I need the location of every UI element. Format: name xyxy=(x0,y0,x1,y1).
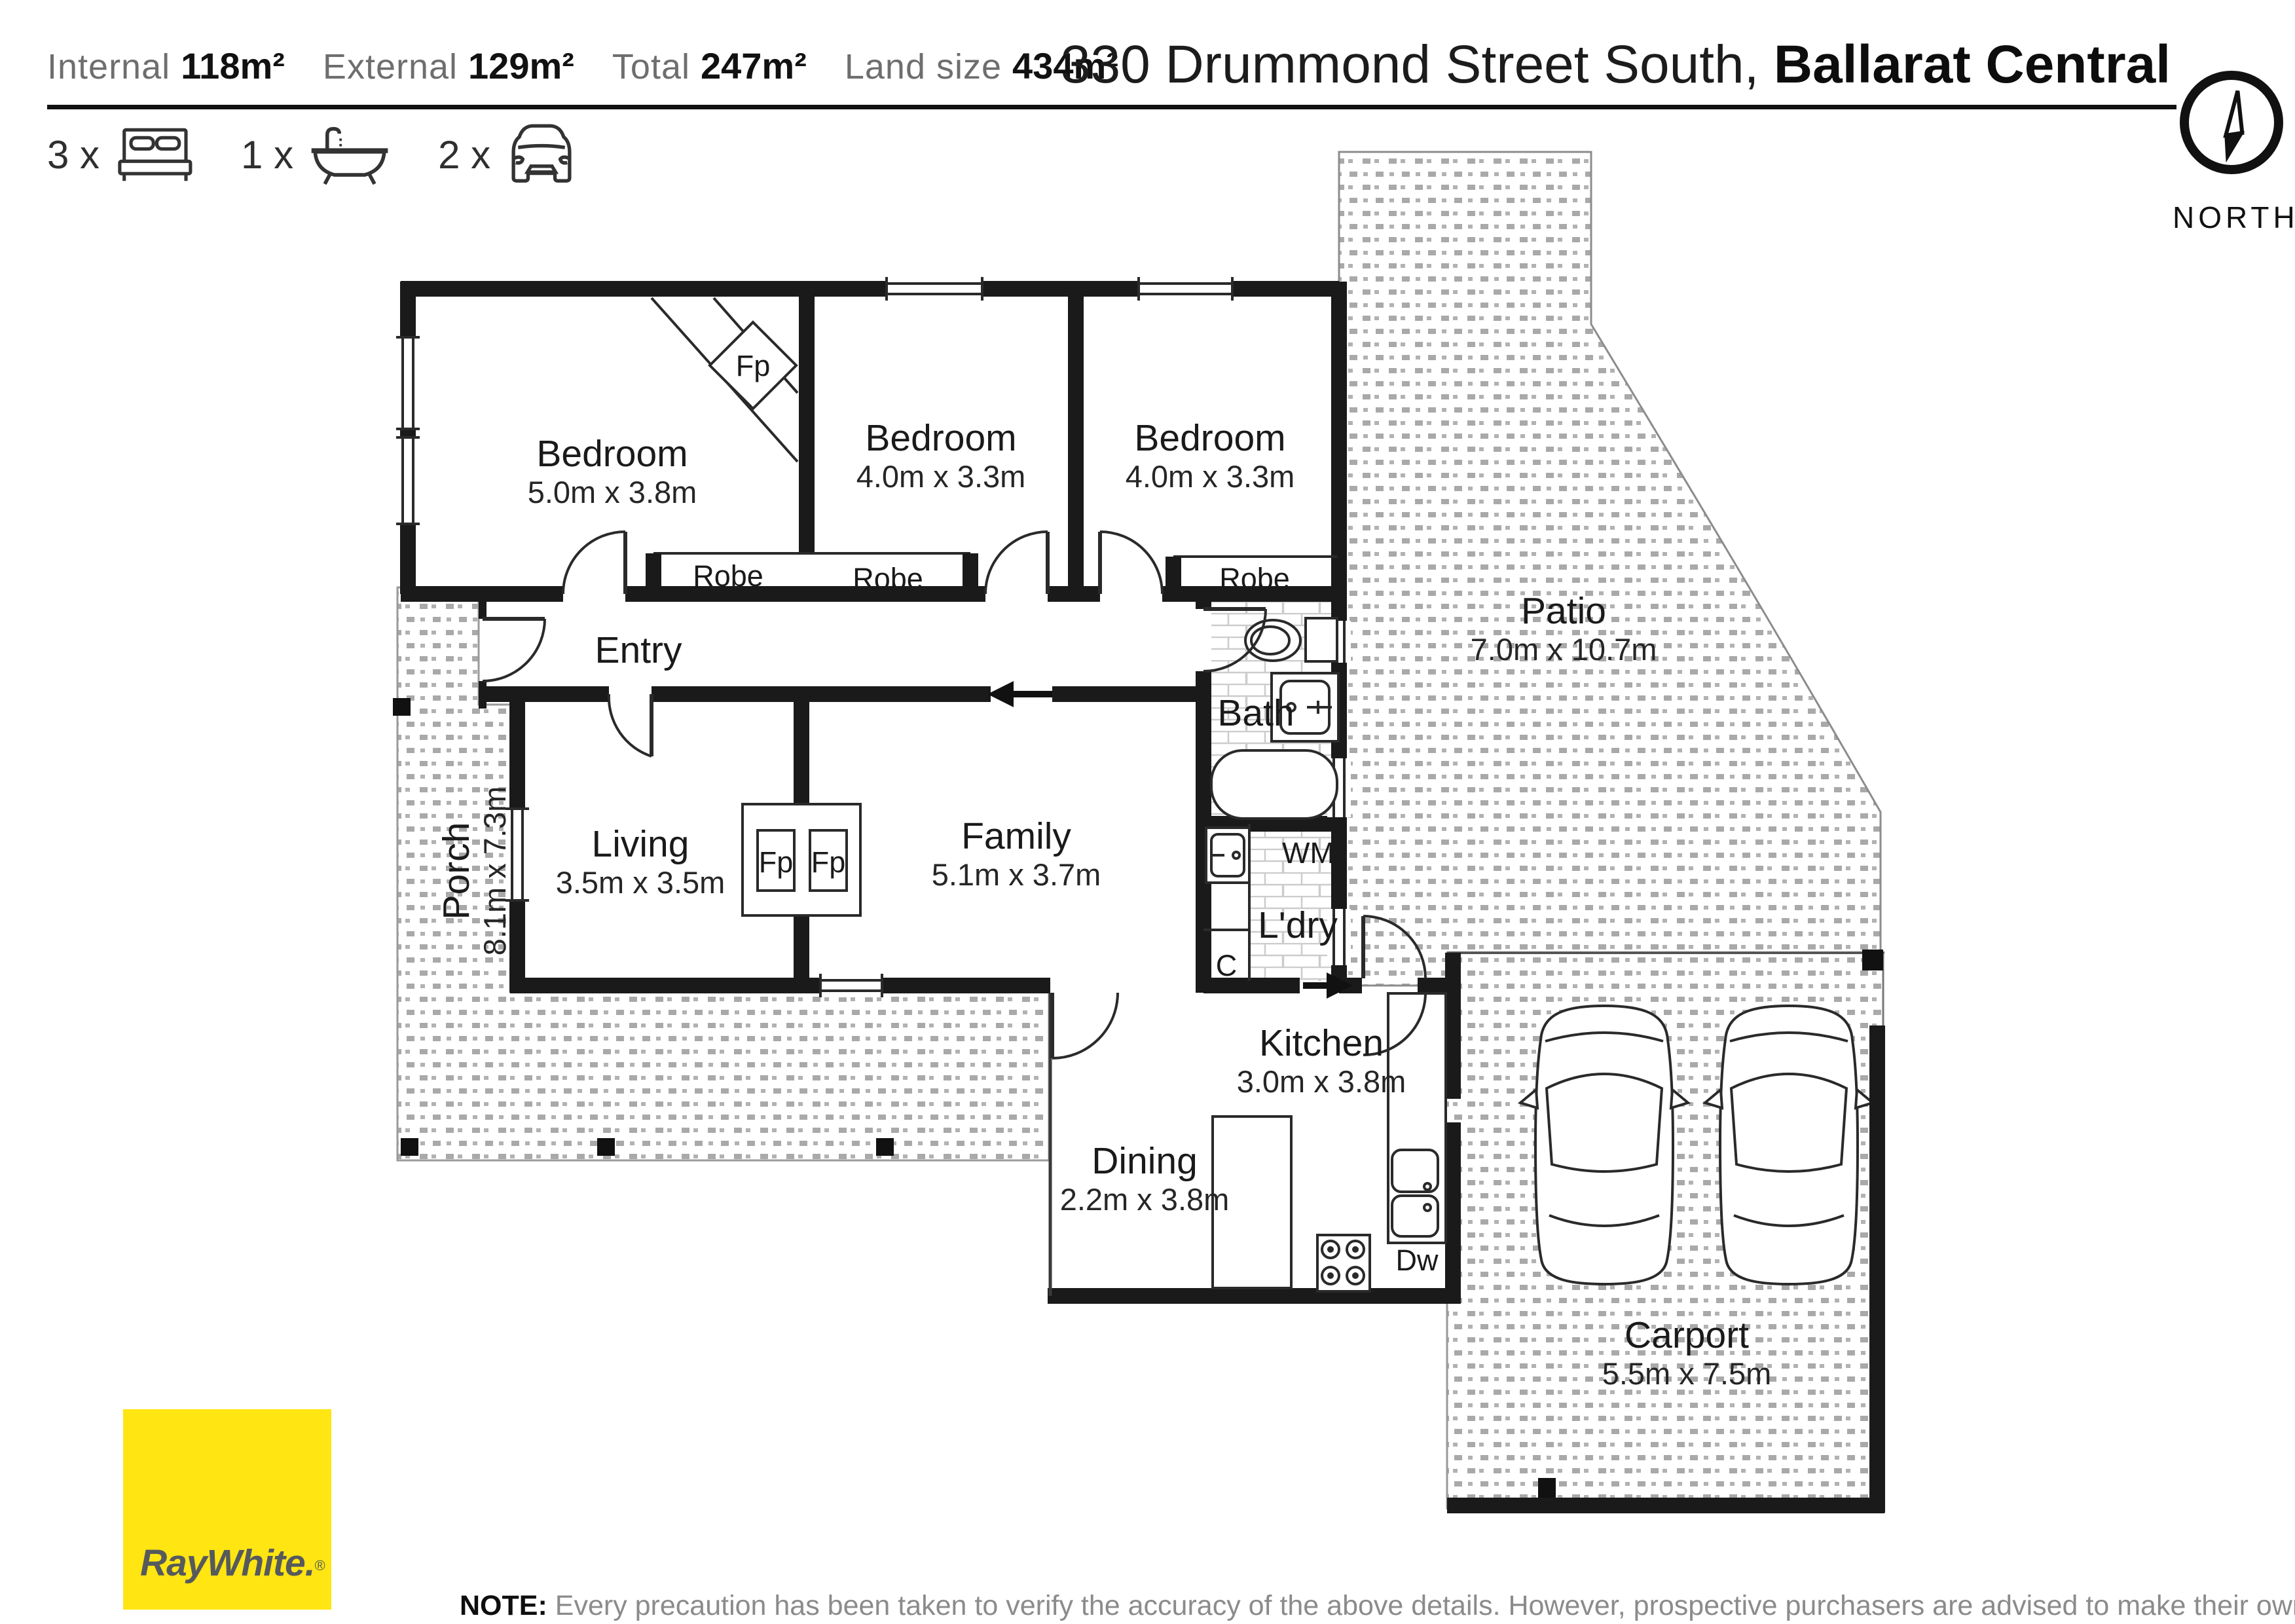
living-name: Living xyxy=(592,823,689,865)
patio-area xyxy=(1339,152,1881,986)
porch-name: Porch xyxy=(435,822,477,920)
double-fireplace: Fp Fp xyxy=(743,804,860,915)
carport-dims: 5.5m x 7.5m xyxy=(1602,1356,1772,1391)
family-name: Family xyxy=(961,815,1071,857)
registered-mark: ® xyxy=(315,1557,325,1574)
dishwasher-label: Dw xyxy=(1396,1244,1439,1277)
kitchen-name: Kitchen xyxy=(1259,1022,1384,1064)
kitchen-dims: 3.0m x 3.8m xyxy=(1237,1064,1406,1099)
entry-name: Entry xyxy=(595,629,682,671)
floorplan-page: Internal 118m² External 129m² Total 247m… xyxy=(0,0,2295,1624)
wm-label: WM xyxy=(1282,836,1334,870)
porch-dims: 8.1m x 7.3m xyxy=(477,786,512,956)
robe-label-3: Robe xyxy=(1219,562,1290,595)
note-prefix: NOTE: xyxy=(460,1590,547,1621)
bedroom1-dims: 5.0m x 3.8m xyxy=(528,475,697,509)
bath-name: Bath xyxy=(1217,692,1294,734)
carport-name: Carport xyxy=(1625,1314,1749,1356)
fireplace-label: Fp xyxy=(736,349,771,382)
disclaimer-note: NOTE:Every precaution has been taken to … xyxy=(460,1590,2295,1622)
cupboard-label: C xyxy=(1216,949,1238,982)
robe-label-1: Robe xyxy=(693,559,763,593)
robe-label-2: Robe xyxy=(853,562,923,595)
bedroom3-name: Bedroom xyxy=(1134,417,1285,459)
raywhite-logo: RayWhite.® xyxy=(123,1409,331,1610)
laundry-name: L'dry xyxy=(1258,904,1338,946)
note-text: Every precaution has been taken to verif… xyxy=(555,1590,2295,1621)
patio-name: Patio xyxy=(1521,590,1606,632)
living-dims: 3.5m x 3.5m xyxy=(556,865,725,900)
car-2 xyxy=(1705,1006,1873,1284)
dining-dims: 2.2m x 3.8m xyxy=(1060,1182,1230,1217)
bedroom2-name: Bedroom xyxy=(865,417,1016,459)
fp-right-label: Fp xyxy=(811,845,846,879)
floor-plan: Robe Robe Robe Fp Fp Fp xyxy=(0,0,2295,1624)
bedroom1-name: Bedroom xyxy=(536,433,688,475)
brand-text: RayWhite.® xyxy=(140,1541,325,1585)
bedroom3-dims: 4.0m x 3.3m xyxy=(1126,459,1295,494)
dining-name: Dining xyxy=(1092,1140,1198,1182)
patio-dims: 7.0m x 10.7m xyxy=(1471,632,1657,667)
family-dims: 5.1m x 3.7m xyxy=(932,857,1101,892)
car-1 xyxy=(1520,1006,1688,1284)
bedroom2-dims: 4.0m x 3.3m xyxy=(856,459,1026,494)
fp-left-label: Fp xyxy=(759,845,794,879)
